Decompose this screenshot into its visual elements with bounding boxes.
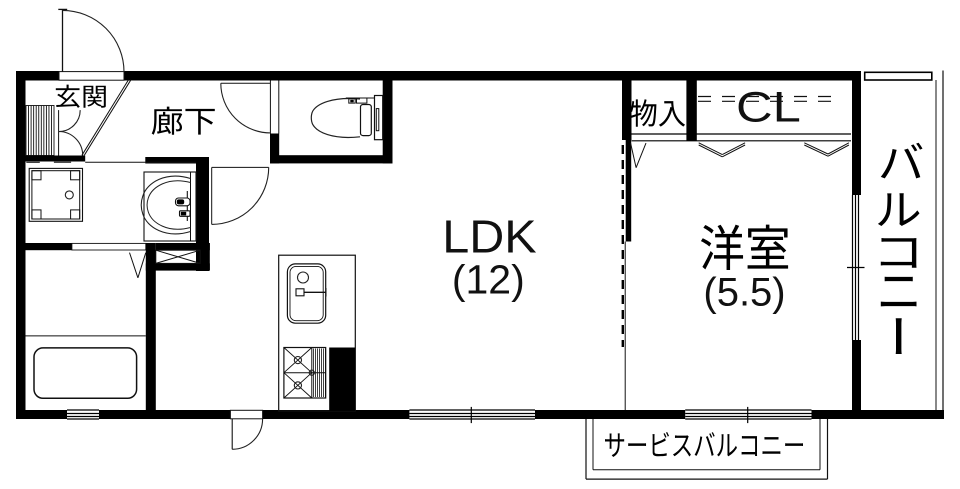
svg-text:(5.5): (5.5) [703, 271, 785, 315]
svg-text:CL: CL [736, 82, 801, 130]
svg-text:(12): (12) [452, 257, 525, 303]
